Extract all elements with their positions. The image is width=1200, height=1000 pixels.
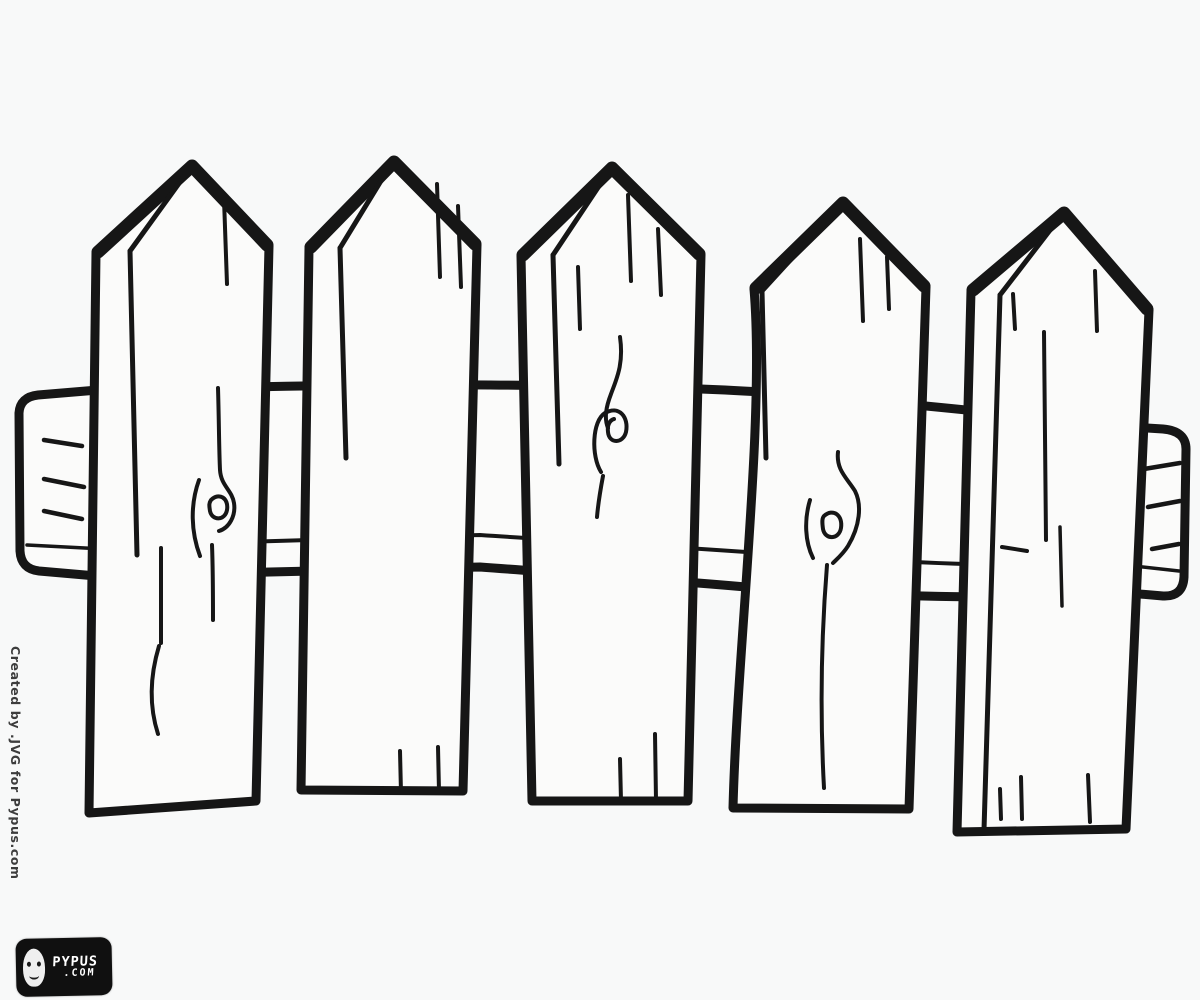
fence-line-art xyxy=(0,0,1200,1000)
octopus-icon xyxy=(23,948,46,986)
watermark-credit: Created by .JVG for Pypus.com xyxy=(8,646,23,958)
picket-1-face xyxy=(89,166,269,813)
fence-picket-1 xyxy=(89,166,269,813)
pypus-logo-text: PYPUS .COM xyxy=(51,954,98,980)
fence-picket-2 xyxy=(301,162,477,793)
pypus-logo-badge: PYPUS .COM xyxy=(15,937,112,997)
octopus-mouth-icon xyxy=(29,972,39,980)
fence-picket-5 xyxy=(957,213,1149,832)
picket-2-face xyxy=(301,162,477,791)
picket-3-face xyxy=(521,168,701,801)
fence-picket-3 xyxy=(521,168,701,801)
coloring-page-canvas: Created by .JVG for Pypus.com PYPUS .COM xyxy=(0,0,1200,1000)
octopus-eye-icon xyxy=(27,962,31,967)
octopus-eye-icon xyxy=(37,961,41,966)
fence-picket-4 xyxy=(733,203,926,809)
pypus-logo-tld: .COM xyxy=(63,968,96,979)
